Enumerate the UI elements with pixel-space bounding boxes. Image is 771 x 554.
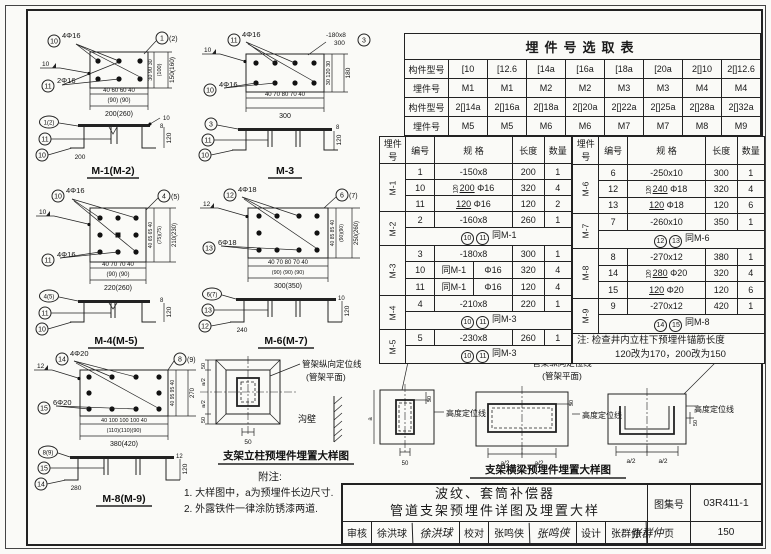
svg-text:50: 50 [244, 439, 252, 446]
table-row: 14 15 同M-8 [573, 315, 765, 334]
svg-text:10: 10 [206, 88, 214, 95]
svg-text:a/2: a/2 [626, 458, 635, 465]
m1-plate-id: 1 [160, 36, 164, 43]
svg-text:11: 11 [230, 38, 237, 45]
table-row: 11同M-1Φ161204 [380, 279, 572, 296]
check-label: 校对 [459, 522, 488, 543]
svg-text:50: 50 [201, 417, 207, 423]
svg-text:10: 10 [38, 327, 46, 334]
svg-text:(90)(90): (90)(90) [339, 224, 345, 242]
svg-text:380(420): 380(420) [110, 441, 138, 448]
svg-text:40 70 70 40: 40 70 70 40 [102, 262, 134, 268]
parts-note-line2: 120改为170，200改为150 [577, 348, 764, 362]
svg-text:14: 14 [58, 357, 66, 364]
catalog-no-value: 03R411-1 [690, 485, 761, 521]
table-row: M-11-150x82001 [380, 164, 572, 180]
review-signature: 徐洪球 [412, 521, 460, 544]
beam-placement-detail: 管架纵向定位线 (管架平面) a 50 高度定位线 50 50 [372, 356, 764, 480]
svg-text:(5): (5) [171, 194, 180, 201]
svg-text:10: 10 [204, 47, 212, 54]
beam-section-2: 50 高度定位线 a/2 a/2 [476, 386, 622, 467]
m1-dimensions: 30 90 30 (100) 150(160) 40 60 60 40 (90)… [90, 52, 176, 118]
note-item-2: 2. 外露铁件一律涂防锈漆两道. [184, 502, 356, 518]
svg-text:3: 3 [209, 122, 213, 129]
m1-weld-size: 10 [42, 61, 50, 68]
table-row: M-77-260x103501 [573, 214, 765, 230]
svg-text:高度定位线: 高度定位线 [582, 410, 622, 420]
svg-text:200(260): 200(260) [105, 111, 133, 118]
svg-text:10: 10 [54, 194, 62, 201]
parts-table-right: 埋件号编号规 格长度数量 M-66-250x103001 12120240 Φ1… [572, 136, 765, 364]
sheet-title-line2: 管道支架预埋件详图及埋置大样 [390, 503, 600, 520]
m4-plan-view: 10 4Φ16 10 11 4Φ16 4 (5) [36, 186, 180, 266]
selection-table: 埋件号选取表 构件型号 [10[12.6[14a[16a[18a[20a2[]1… [404, 33, 761, 136]
svg-text:30 120 30: 30 120 30 [326, 61, 332, 85]
svg-text:220(260): 220(260) [104, 285, 132, 292]
table-row: 10同M-1Φ163204 [380, 262, 572, 279]
m3-title: M-3 [276, 165, 294, 177]
note-item-1: 1. 大样图中，a为预埋件长边尺寸. [184, 486, 356, 502]
table-row: 10120200 Φ163204 [380, 180, 572, 196]
svg-text:30 90 30: 30 90 30 [148, 59, 154, 80]
m8-weld-symbol: 12 [34, 363, 81, 380]
m4-section-view: 4(5) 11 10 8 120 [36, 290, 173, 335]
svg-text:6: 6 [340, 193, 344, 200]
svg-text:40 100 100 100 40: 40 100 100 100 40 [101, 418, 147, 424]
svg-text:(9): (9) [187, 357, 196, 364]
svg-text:11: 11 [44, 258, 51, 265]
diagram-m3: 11 4Φ16 10 10 4Φ16 -180x8 300 3 30 120 3… [196, 28, 374, 180]
design-label: 设计 [576, 522, 605, 543]
m1-section-view: 1(2) 11 10 200 10 8 120 [36, 116, 173, 161]
svg-text:高度定位线: 高度定位线 [446, 408, 486, 418]
svg-text:12: 12 [203, 201, 211, 208]
page-number: 150 [690, 522, 761, 543]
m4-weld-symbol: 10 [36, 209, 91, 226]
svg-text:120: 120 [336, 134, 343, 145]
svg-text:40 65 65 40: 40 65 65 40 [148, 222, 154, 249]
table-row: 10 11 同M-3 [380, 312, 572, 330]
svg-text:200: 200 [75, 154, 86, 161]
notes-title: 附注: [184, 469, 356, 485]
m6-title: M-6(M-7) [264, 335, 307, 347]
m1-plate-id-alt: (2) [169, 36, 178, 43]
svg-text:250(260): 250(260) [354, 221, 360, 245]
catalog-no-label: 图集号 [647, 485, 690, 521]
column-dimensions: 50 a/2 a/2 50 50 [201, 360, 254, 446]
svg-text:40 70 80 70 40: 40 70 80 70 40 [265, 92, 306, 98]
svg-text:(110)(110)(90): (110)(110)(90) [107, 428, 142, 434]
svg-text:8(9): 8(9) [43, 451, 54, 457]
svg-text:11: 11 [41, 311, 48, 318]
svg-text:6(7): 6(7) [207, 293, 218, 299]
general-notes: 附注: 1. 大样图中，a为预埋件长边尺寸. 2. 外露铁件一律涂防锈漆两道. [184, 469, 356, 517]
beam-axis-label2: (管架平面) [542, 371, 582, 381]
svg-text:(90) (90): (90) (90) [107, 98, 130, 104]
table-row: M-55-230x82601 [380, 330, 572, 346]
table-note-row: 注: 检查井内立柱下预埋件锚筋长度120改为170，200改为150 [573, 333, 765, 363]
svg-text:40 95 95 40: 40 95 95 40 [170, 380, 176, 407]
m6-dimensions: 40 85 85 40 (90)(90) 250(260) 40 70 80 7… [248, 208, 360, 290]
parts-tables: 埋件号编号规 格长度数量 M-11-150x82001 10120200 Φ16… [379, 136, 765, 364]
trench-wall-hatch [334, 396, 342, 442]
svg-text:50: 50 [569, 400, 575, 406]
m3-section-view: 3 11 10 8 120 [199, 118, 343, 161]
svg-text:300: 300 [279, 113, 291, 120]
table-row: 14120280 Φ203204 [573, 265, 765, 281]
m3-plate-spec: -180x8 [326, 32, 346, 39]
m8-section-view: 8(9) 15 14 280 12 120 [35, 446, 189, 492]
m4-title: M-4(M-5) [94, 335, 137, 347]
svg-text:10: 10 [39, 209, 47, 216]
m1-weld-symbol: 10 [40, 61, 91, 75]
svg-text:(90) (90) (90): (90) (90) (90) [272, 270, 305, 276]
svg-text:4Φ20: 4Φ20 [70, 349, 89, 358]
check-signature: 张鸣侠 [529, 521, 577, 544]
svg-text:15: 15 [40, 466, 48, 473]
table-row: 13120 Φ181206 [573, 197, 765, 213]
svg-text:50: 50 [402, 461, 409, 467]
svg-text:210(230): 210(230) [172, 223, 178, 247]
svg-text:13: 13 [205, 246, 213, 253]
svg-text:280: 280 [71, 485, 82, 492]
svg-text:8: 8 [336, 125, 340, 131]
svg-text:4: 4 [162, 194, 166, 201]
review-label: 审核 [343, 522, 371, 543]
svg-text:4Φ16: 4Φ16 [66, 186, 85, 195]
parts-table-left: 埋件号编号规 格长度数量 M-11-150x82001 10120200 Φ16… [379, 136, 572, 364]
parts-note-line1: 注: 检查井内立柱下预埋件锚筋长度 [577, 334, 764, 348]
table-row: M-22-160x82601 [380, 212, 572, 228]
table-row: 12120240 Φ183204 [573, 181, 765, 197]
svg-text:180: 180 [345, 67, 352, 78]
selection-table-title: 埋件号选取表 [405, 34, 761, 60]
svg-text:15: 15 [40, 406, 48, 413]
m1-sec-plate-id: 1(2) [44, 121, 55, 127]
svg-text:12: 12 [37, 363, 45, 370]
trench-wall-label: 沟壁 [298, 413, 316, 424]
diagram-m6: 12 4Φ18 12 13 6Φ18 6 (7) 40 85 85 40 (90… [196, 184, 376, 350]
table-row: M-99-270x124201 [573, 298, 765, 314]
m6-section-view: 6(7) 13 12 240 10 120 [199, 288, 351, 334]
table-row: M-88-270x123801 [573, 249, 765, 265]
beam-detail-title: 支架横梁预埋件埋置大样图 [484, 463, 611, 476]
m3-dimensions: 30 120 30 180 40 70 80 70 40 300 [246, 54, 352, 120]
svg-text:8: 8 [160, 124, 164, 130]
svg-text:10: 10 [201, 153, 209, 160]
svg-text:120: 120 [166, 132, 173, 143]
m1-bar-top-label: 4Φ16 [62, 31, 81, 40]
column-detail-title: 支架立柱预埋件埋置大样图 [222, 449, 349, 462]
table-row: 10 11 同M-1 [380, 228, 572, 246]
svg-text:3: 3 [362, 38, 366, 45]
check-name: 张鸣侠 [488, 522, 529, 543]
svg-text:6Φ20: 6Φ20 [53, 398, 72, 407]
beam-section-3: 高度定位线 50 a/2 a/2 [608, 388, 734, 465]
svg-text:10: 10 [38, 153, 46, 160]
svg-text:50: 50 [427, 396, 433, 402]
svg-text:13: 13 [204, 308, 212, 315]
svg-text:14: 14 [37, 482, 45, 489]
svg-text:6Φ18: 6Φ18 [218, 238, 237, 247]
svg-text:(100): (100) [157, 63, 163, 76]
svg-text:4Φ16: 4Φ16 [242, 30, 261, 39]
svg-text:11: 11 [41, 137, 48, 144]
diagram-m4: 10 4Φ16 10 11 4Φ16 4 (5) 40 65 65 40 (75… [32, 184, 200, 350]
m3-weld-symbol: 10 [202, 47, 247, 63]
sheet-title-line1: 波纹、套筒补偿器 [435, 486, 555, 503]
m1-plan-view: 10 4Φ16 10 11 2Φ16 1 (2) [40, 31, 178, 92]
column-axis-label: 管架纵向定位线 [302, 359, 362, 369]
svg-text:40 60 60 40: 40 60 60 40 [103, 88, 135, 94]
svg-text:(7): (7) [349, 193, 358, 200]
svg-text:120: 120 [166, 306, 173, 317]
m8-title: M-8(M-9) [102, 493, 145, 505]
svg-text:4(5): 4(5) [44, 295, 55, 301]
svg-text:12: 12 [226, 193, 234, 200]
svg-text:8: 8 [160, 298, 164, 304]
svg-text:120: 120 [344, 305, 351, 316]
svg-text:40 85 85 40: 40 85 85 40 [330, 220, 336, 247]
svg-text:300(350): 300(350) [274, 283, 302, 290]
column-section [200, 356, 296, 434]
svg-text:240: 240 [237, 327, 248, 334]
table-row: M-66-250x103001 [573, 164, 765, 180]
svg-text:10: 10 [163, 116, 170, 122]
diagram-m1: 10 4Φ16 10 11 2Φ16 1 (2) 30 90 30 (100) … [32, 28, 192, 180]
svg-text:150(160): 150(160) [169, 57, 176, 83]
design-signature: 张群仲 [646, 522, 648, 543]
table-row: 15120 Φ201206 [573, 282, 765, 298]
table-row: M-44-210x82201 [380, 296, 572, 312]
table-row: 10 11 同M-3 [380, 346, 572, 364]
review-name: 徐洪球 [371, 522, 412, 543]
table-row: M-33-180x83001 [380, 246, 572, 262]
table-row: 12 13 同M-6 [573, 230, 765, 249]
svg-text:(75)(75): (75)(75) [157, 226, 163, 244]
title-block: 波纹、套筒补偿器 管道支架预埋件详图及埋置大样 图集号 03R411-1 审核 … [341, 483, 763, 545]
svg-text:高度定位线: 高度定位线 [694, 404, 734, 414]
column-axis-label2: (管架平面) [306, 372, 346, 382]
svg-text:12: 12 [201, 324, 209, 331]
svg-text:a/2: a/2 [201, 378, 207, 386]
svg-text:a/2: a/2 [201, 400, 207, 408]
svg-text:a/2: a/2 [658, 458, 667, 465]
m6-weld-symbol: 12 [200, 201, 249, 218]
column-placement-detail: 50 a/2 a/2 50 50 管架纵向定位线 (管架平面) 沟壁 支架立柱预… [196, 354, 382, 468]
svg-text:(90) (90): (90) (90) [106, 272, 129, 278]
svg-text:11: 11 [204, 138, 211, 145]
svg-text:40 70 80 70 40: 40 70 80 70 40 [268, 260, 309, 266]
m1-bar-top-id: 10 [50, 39, 58, 46]
m3-plate-length: 300 [334, 40, 345, 47]
beam-section-1: a 50 高度定位线 50 [368, 384, 486, 467]
m1-title: M-1(M-2) [91, 165, 134, 177]
svg-text:4Φ18: 4Φ18 [238, 185, 257, 194]
table-row: 11120 Φ161202 [380, 196, 572, 212]
m1-bar-mid-id: 11 [44, 84, 51, 91]
svg-text:50: 50 [201, 363, 207, 369]
sheet-title: 波纹、套筒补偿器 管道支架预埋件详图及埋置大样 [343, 485, 647, 521]
m3-plan-view: 11 4Φ16 10 10 4Φ16 -180x8 300 3 [202, 30, 370, 96]
drawing-sheet: 10 4Φ16 10 11 2Φ16 1 (2) 30 90 30 (100) … [0, 0, 771, 554]
svg-text:50: 50 [693, 420, 699, 426]
svg-text:8: 8 [178, 357, 182, 364]
